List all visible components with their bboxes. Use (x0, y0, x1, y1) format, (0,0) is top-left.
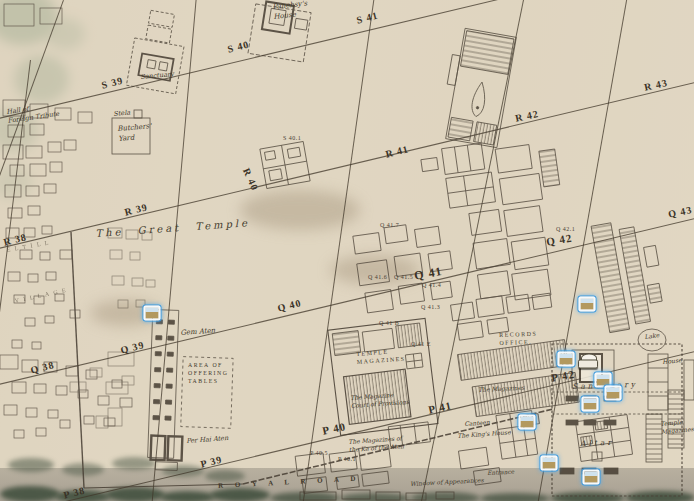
map-viewport[interactable]: S 39S 40S 41R 38R 39R 40R 41R 42R 43Q 38… (0, 0, 694, 501)
photo-marker[interactable] (582, 397, 599, 412)
photo-marker[interactable] (144, 306, 161, 321)
photo-marker[interactable] (519, 415, 536, 430)
photo-marker[interactable] (558, 352, 575, 367)
photo-marker[interactable] (579, 297, 596, 312)
photo-marker[interactable] (541, 456, 558, 471)
model-marker-3d[interactable] (578, 354, 598, 369)
model-marker-base (578, 360, 598, 369)
photo-marker[interactable] (583, 470, 600, 485)
placemark-layer (0, 0, 694, 501)
photo-marker[interactable] (605, 386, 622, 401)
